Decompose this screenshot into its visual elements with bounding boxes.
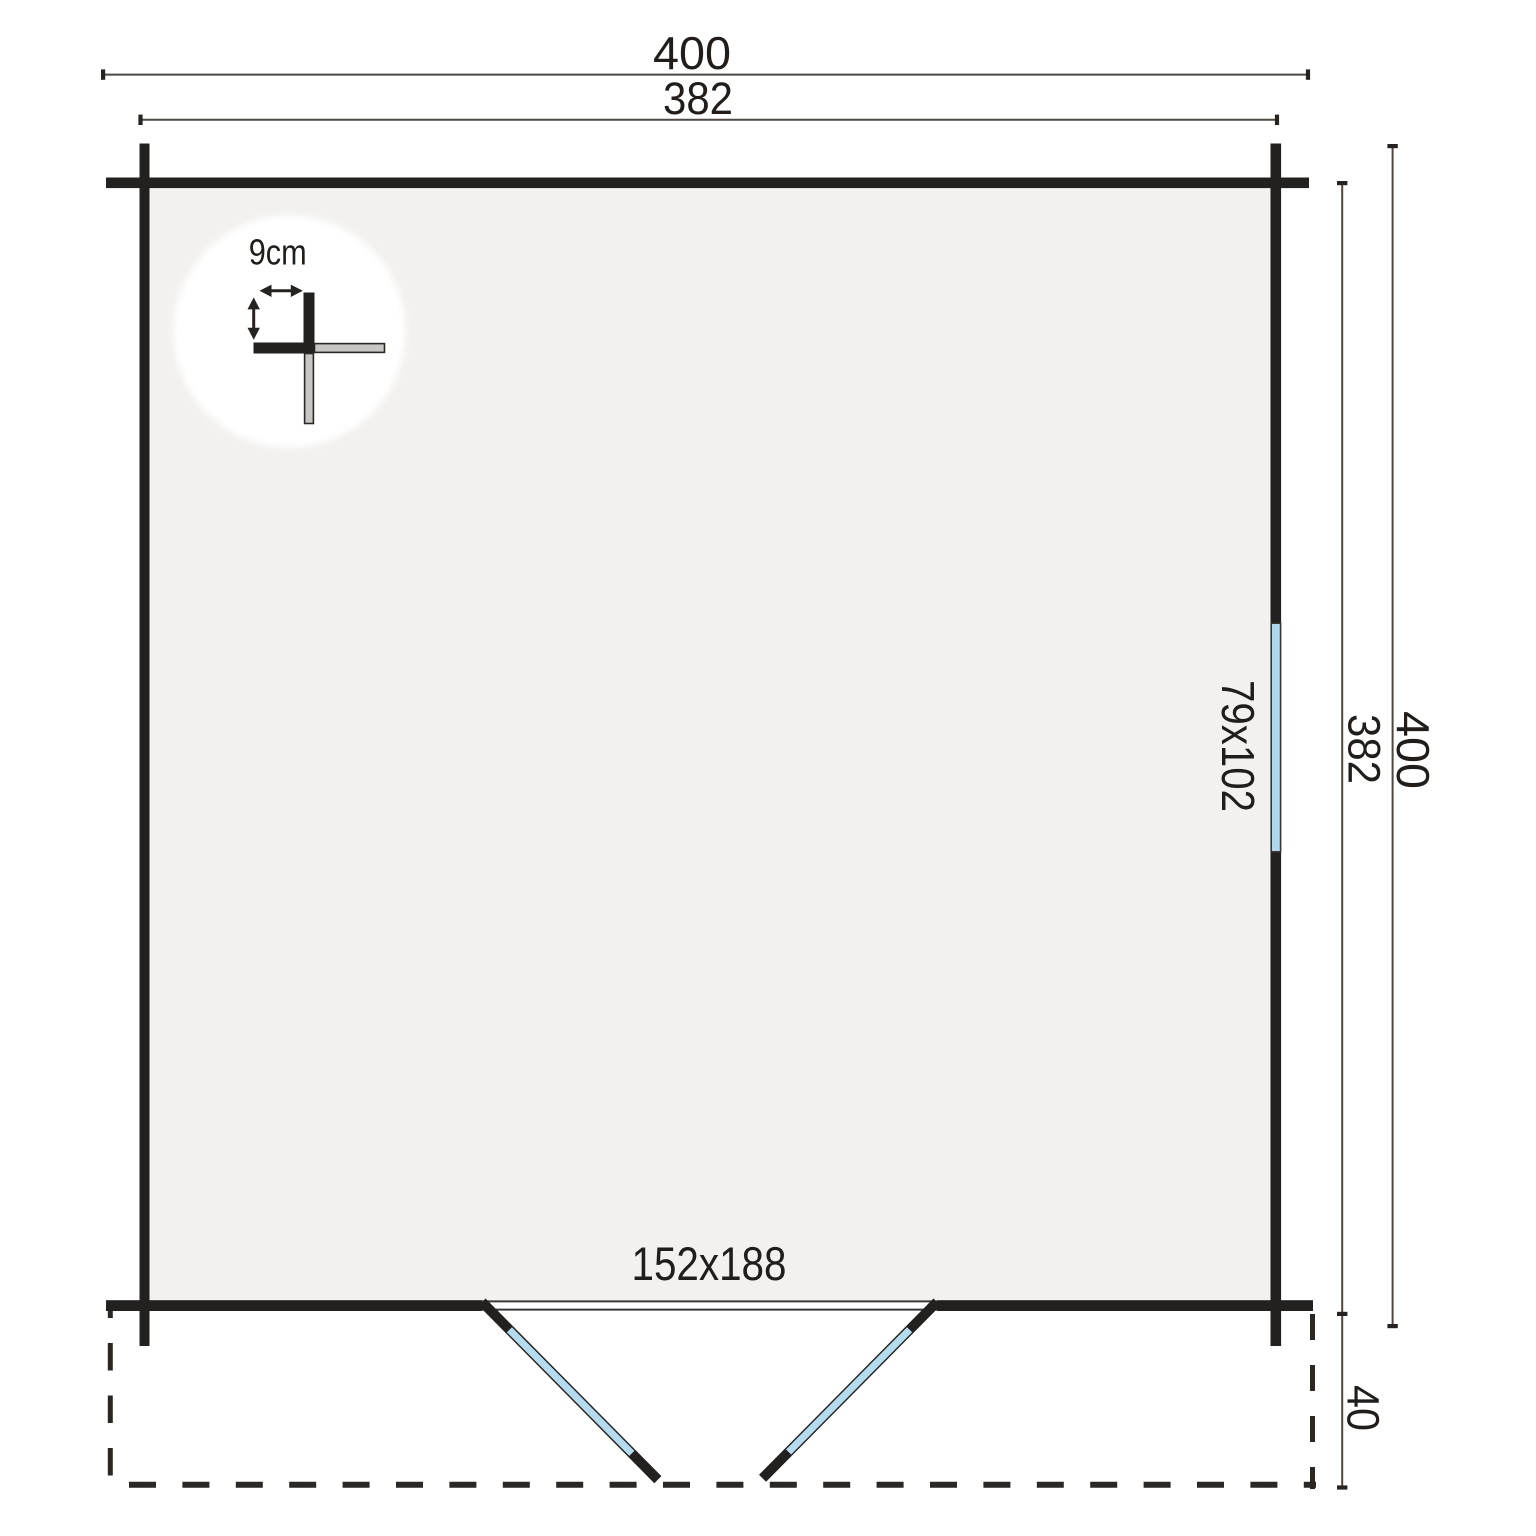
- svg-text:40: 40: [1338, 1385, 1389, 1431]
- svg-text:152x188: 152x188: [632, 1237, 787, 1290]
- svg-text:400: 400: [653, 27, 731, 79]
- svg-text:382: 382: [1339, 714, 1390, 784]
- svg-text:9cm: 9cm: [249, 232, 307, 273]
- svg-text:400: 400: [1387, 711, 1439, 789]
- svg-text:79x102: 79x102: [1212, 680, 1264, 812]
- svg-text:382: 382: [663, 73, 733, 124]
